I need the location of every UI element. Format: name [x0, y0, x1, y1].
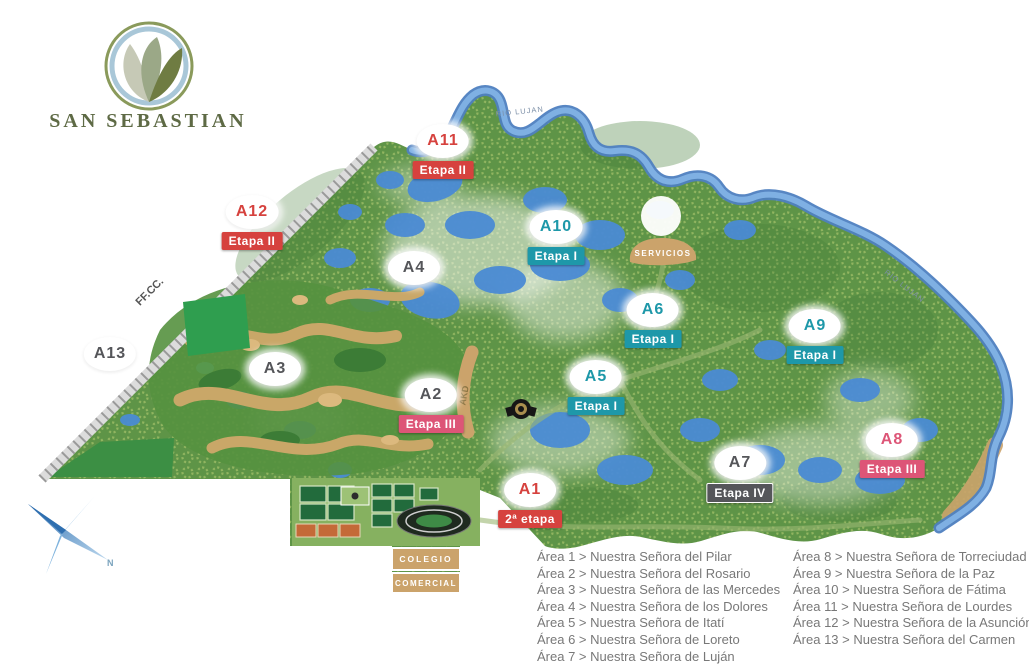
area-a7-etapa-badge: Etapa IV: [706, 483, 773, 503]
area-a5-label[interactable]: A5: [570, 360, 622, 394]
legend-item: Área 10 > Nuestra Señora de Fátima: [793, 582, 1029, 599]
legend-column-right: Área 8 > Nuestra Señora de Torreciudad Á…: [793, 549, 1029, 649]
area-a6-etapa-badge: Etapa I: [625, 330, 682, 348]
area-a5-etapa-badge: Etapa I: [568, 397, 625, 415]
legend-item: Área 12 > Nuestra Señora de la Asunción: [793, 615, 1029, 632]
legend-item: Área 11 > Nuestra Señora de Lourdes: [793, 599, 1029, 616]
green-plot: [183, 294, 250, 356]
brand-name: SAN SEBASTIAN: [26, 110, 270, 133]
area-a9-etapa-badge: Etapa I: [787, 346, 844, 364]
services-label: SERVICIOS: [635, 249, 692, 258]
area-marker-a11[interactable]: A11 Etapa II: [413, 124, 474, 179]
area-a9-label[interactable]: A9: [789, 309, 841, 343]
area-a13-label[interactable]: A13: [84, 337, 136, 371]
area-marker-a4[interactable]: A4: [388, 251, 440, 285]
area-a8-label[interactable]: A8: [866, 423, 918, 457]
legend-item: Área 6 > Nuestra Señora de Loreto: [537, 632, 780, 649]
area-a10-label[interactable]: A10: [530, 210, 582, 244]
legend-item: Área 7 > Nuestra Señora de Luján: [537, 649, 780, 666]
legend-item: Área 4 > Nuestra Señora de los Dolores: [537, 599, 780, 616]
area-marker-a13[interactable]: A13: [84, 337, 136, 371]
services-clearing: [641, 196, 681, 236]
area-a11-label[interactable]: A11: [417, 124, 469, 158]
compass-north-label: N: [107, 558, 114, 568]
area-a2-etapa-badge: Etapa III: [399, 415, 464, 433]
area-a1-label[interactable]: A1: [504, 473, 556, 507]
area-a2-label[interactable]: A2: [405, 378, 457, 412]
railroad-label: FF.CC.: [134, 276, 167, 309]
area-marker-a5[interactable]: A5 Etapa I: [568, 360, 625, 415]
area-a8-etapa-badge: Etapa III: [860, 460, 925, 478]
legend-item: Área 13 > Nuestra Señora del Carmen: [793, 632, 1029, 649]
sports-complex: [292, 478, 480, 546]
brand-logo: [103, 18, 195, 114]
area-marker-a1[interactable]: A1 2ª etapa: [498, 473, 562, 528]
masterplan-page: AKD RIO LUJAN RIO LUJAN FF.CC. SERVICIOS: [0, 0, 1029, 670]
soccer-ball-icon: [352, 493, 359, 500]
area-a3-label[interactable]: A3: [249, 352, 301, 386]
area-marker-a8[interactable]: A8 Etapa III: [860, 423, 925, 478]
area-a7-label[interactable]: A7: [714, 446, 766, 480]
area-a12-label[interactable]: A12: [226, 195, 278, 229]
area-a11-etapa-badge: Etapa II: [413, 161, 474, 179]
area-a6-label[interactable]: A6: [627, 293, 679, 327]
area-marker-a10[interactable]: A10 Etapa I: [528, 210, 585, 265]
area-marker-a2[interactable]: A2 Etapa III: [399, 378, 464, 433]
area-a1-etapa-badge: 2ª etapa: [498, 510, 562, 528]
school-label: COLEGIO: [399, 554, 452, 564]
compass-rose: N: [28, 497, 114, 574]
area-a4-label[interactable]: A4: [388, 251, 440, 285]
area-marker-a7[interactable]: A7 Etapa IV: [706, 446, 773, 503]
area-marker-a9[interactable]: A9 Etapa I: [787, 309, 844, 364]
legend-item: Área 3 > Nuestra Señora de las Mercedes: [537, 582, 780, 599]
area-marker-a6[interactable]: A6 Etapa I: [625, 293, 682, 348]
area-marker-a12[interactable]: A12 Etapa II: [222, 195, 283, 250]
legend-item: Área 5 > Nuestra Señora de Itatí: [537, 615, 780, 632]
legend-item: Área 2 > Nuestra Señora del Rosario: [537, 566, 780, 583]
area-a10-etapa-badge: Etapa I: [528, 247, 585, 265]
legend-column-left: Área 1 > Nuestra Señora del Pilar Área 2…: [537, 549, 780, 665]
legend-item: Área 9 > Nuestra Señora de la Paz: [793, 566, 1029, 583]
area-marker-a3[interactable]: A3: [249, 352, 301, 386]
legend-item: Área 1 > Nuestra Señora del Pilar: [537, 549, 780, 566]
commercial-label: COMERCIAL: [395, 579, 457, 588]
area-a12-etapa-badge: Etapa II: [222, 232, 283, 250]
legend-item: Área 8 > Nuestra Señora de Torreciudad: [793, 549, 1029, 566]
